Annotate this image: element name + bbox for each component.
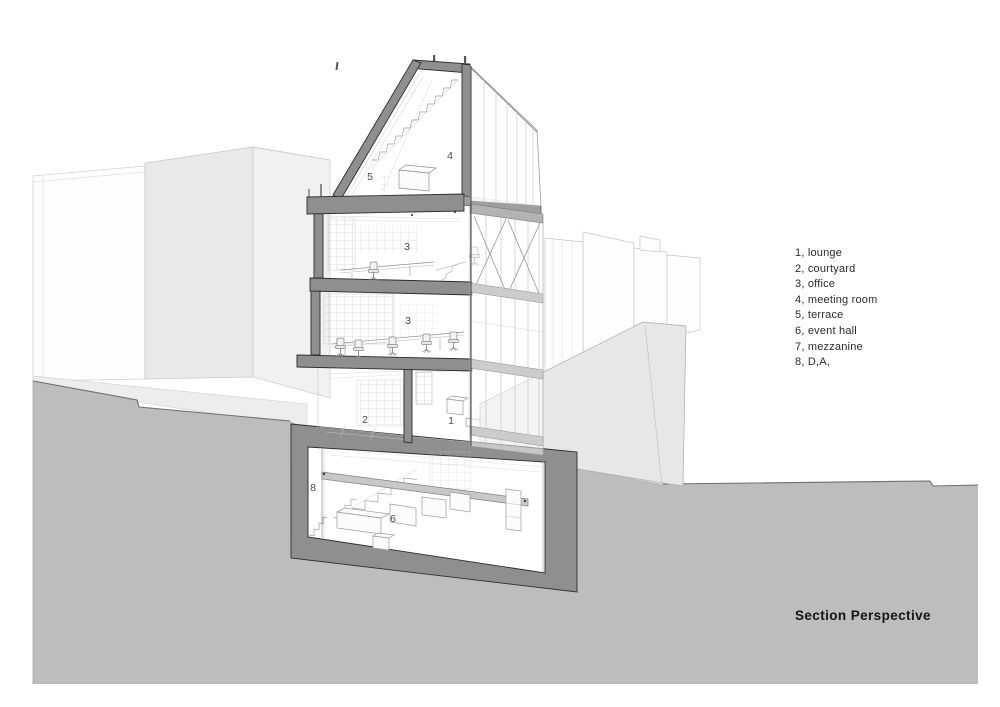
- legend-item-office: 3, office: [795, 277, 877, 293]
- legend-item-da: 8, D,A,: [795, 355, 877, 371]
- background-building-left: [33, 166, 145, 381]
- attic-meeting-room: [333, 55, 470, 201]
- floor-label-terrace: 5: [367, 172, 373, 183]
- office-upper: [310, 211, 480, 295]
- legend-item-event-hall: 6, event hall: [795, 324, 877, 340]
- legend-item-lounge: 1, lounge: [795, 246, 877, 262]
- legend-item-courtyard: 2, courtyard: [795, 262, 877, 278]
- section-perspective-sheet: 5 4 3 3 2 1 8 6 1, lounge 2, courtyard 3…: [0, 0, 1000, 707]
- floor-label-office-lower: 3: [405, 316, 411, 327]
- floor-label-dry-area: 8: [310, 483, 316, 494]
- room-legend: 1, lounge 2, courtyard 3, office 4, meet…: [795, 246, 877, 371]
- legend-item-meeting-room: 4, meeting room: [795, 293, 877, 309]
- floor-label-courtyard: 2: [362, 415, 368, 426]
- floor-label-meeting-room: 4: [447, 151, 453, 162]
- legend-item-terrace: 5, terrace: [795, 308, 877, 324]
- floor-label-lounge: 1: [448, 416, 454, 427]
- floor-label-office-upper: 3: [404, 242, 410, 253]
- legend-item-mezzanine: 7, mezzanine: [795, 340, 877, 356]
- attic-facade: [470, 66, 541, 206]
- floor-label-event-hall: 6: [390, 514, 396, 525]
- drawing-title: Section Perspective: [795, 608, 931, 623]
